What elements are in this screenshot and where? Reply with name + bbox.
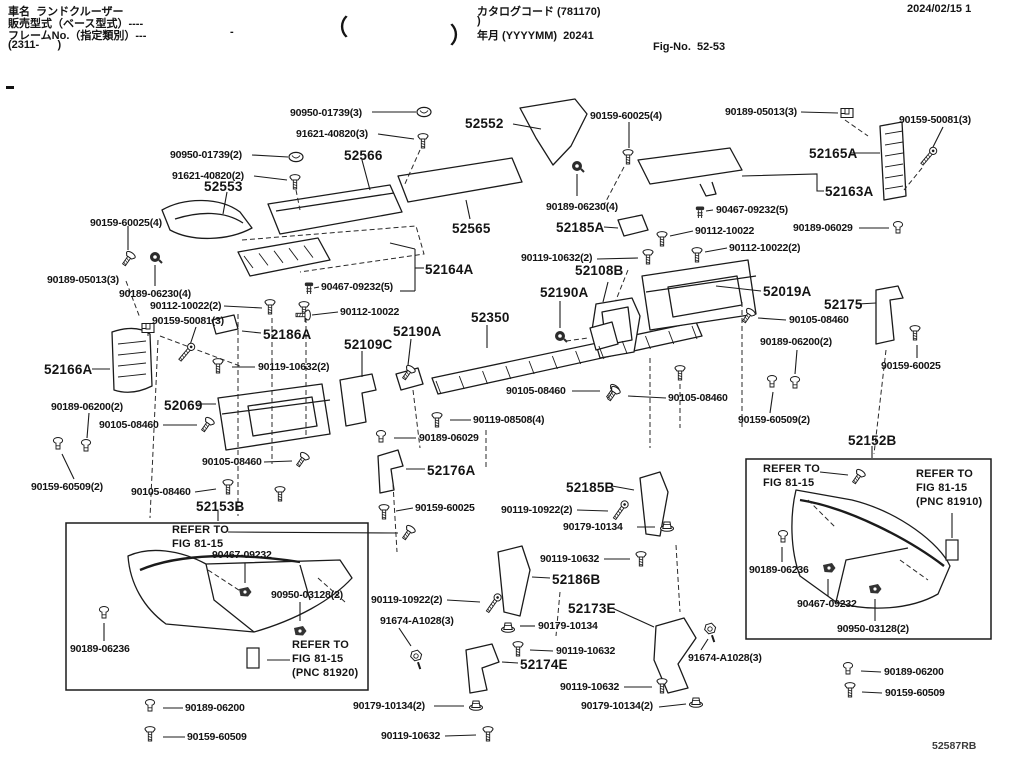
grommet-icon xyxy=(843,663,852,675)
part-number-label: 52553 xyxy=(204,179,243,195)
part-number-label: 91621-40820(3) xyxy=(296,128,368,140)
part-number-label: 52176A xyxy=(427,463,476,479)
oval-clip-icon xyxy=(417,107,431,116)
part-number-label: 90189-06230(4) xyxy=(546,201,618,213)
part-number-label: 90159-60025 xyxy=(881,360,941,372)
push-nut-icon xyxy=(572,161,584,172)
part-number-label: 90105-08460 xyxy=(789,314,849,326)
part-number-label: 90189-06200 xyxy=(884,666,944,678)
part-number-label: 52165A xyxy=(809,146,858,162)
bolt-icon xyxy=(294,451,310,469)
refer-note: REFER TO FIG 81-15 xyxy=(763,463,820,491)
part-number-label: 90189-06200 xyxy=(185,702,245,714)
part-number-label: 90159-50081(3) xyxy=(152,315,224,327)
part-number-label: 91674-A1028(3) xyxy=(380,615,454,627)
grommet-icon xyxy=(53,438,62,450)
refer-note: REFER TO FIG 81-15 (PNC 81910) xyxy=(916,468,982,509)
part-number-label: 52186B xyxy=(552,572,601,588)
exploded-parts-diagram xyxy=(0,0,1009,768)
part-number-label: 52109C xyxy=(344,337,393,353)
part-number-label: 52190A xyxy=(393,324,442,340)
parts-catalog-page: 車名 ランドクルーザー 販売型式（ベース型式）---- フレームNo.（指定類別… xyxy=(0,0,1009,768)
part-number-label: 90189-06029 xyxy=(793,222,853,234)
part-number-label: 90189-05013(3) xyxy=(725,106,797,118)
part-number-label: 90119-10632 xyxy=(560,681,619,693)
bolt-icon xyxy=(675,366,685,380)
part-number-label: 90119-10632 xyxy=(540,553,599,565)
bolt-icon xyxy=(623,150,633,164)
hex-screw-icon xyxy=(408,649,425,669)
part-number-label: 90189-05013(3) xyxy=(47,274,119,286)
pnc-ref-icon xyxy=(247,648,259,668)
part-number-label: 52565 xyxy=(452,221,491,237)
bolt-icon xyxy=(265,300,275,314)
part-number-label: 90112-10022(2) xyxy=(150,300,221,312)
part-number-label: 90112-10022 xyxy=(340,306,399,318)
part-number-label: 90105-08460 xyxy=(131,486,191,498)
part-number-label: 52108B xyxy=(575,263,624,279)
part-number-label: 90159-60509 xyxy=(187,731,247,743)
refer-note: REFER TO FIG 81-15 xyxy=(172,524,229,552)
bolt-icon xyxy=(120,250,136,268)
grommet-icon xyxy=(99,607,108,619)
hex-screw-icon xyxy=(702,622,719,642)
screw-icon xyxy=(612,499,630,520)
part-number-label: 90950-03128(2) xyxy=(837,623,909,635)
part-number-label: 52186A xyxy=(263,327,312,343)
grommet-icon xyxy=(145,700,154,712)
part-number-label: 90189-06029 xyxy=(419,432,479,444)
part-number-label: 52552 xyxy=(465,116,504,132)
part-number-label: 90159-60025(4) xyxy=(590,110,662,122)
part-number-label: 90105-08460 xyxy=(668,392,728,404)
part-number-label: 90119-10632 xyxy=(556,645,615,657)
grommet-icon xyxy=(81,440,90,452)
bolt-icon xyxy=(657,232,667,246)
part-number-label: 90119-10922(2) xyxy=(501,504,572,516)
bolt-icon xyxy=(910,326,920,340)
bolt-icon xyxy=(483,727,493,741)
part-number-label: 52069 xyxy=(164,398,203,414)
part-number-label: 52174E xyxy=(520,657,568,673)
bolt-icon xyxy=(213,359,223,373)
screw-icon xyxy=(919,146,938,167)
part-number-label: 90105-08460 xyxy=(202,456,262,468)
washer-nut-icon xyxy=(470,701,483,710)
part-number-label: 90950-01739(3) xyxy=(290,107,362,119)
part-number-label: 90105-08460 xyxy=(506,385,566,397)
push-nut-icon xyxy=(150,252,162,263)
bolt-icon xyxy=(145,727,155,741)
washer-nut-icon xyxy=(502,623,515,632)
bolt-icon xyxy=(432,413,442,427)
grommet-icon xyxy=(893,222,902,234)
part-number-label: 52164A xyxy=(425,262,474,278)
part-number-label: 90159-60025 xyxy=(415,502,475,514)
bolt-icon xyxy=(199,416,215,434)
bolt-icon xyxy=(418,134,428,148)
part-number-label: 90179-10134(2) xyxy=(581,700,653,712)
part-number-label: 52163A xyxy=(825,184,874,200)
part-number-label: 52350 xyxy=(471,310,510,326)
part-number-label: 52566 xyxy=(344,148,383,164)
part-number-label: 90179-10134(2) xyxy=(353,700,425,712)
pin-icon xyxy=(305,283,313,295)
bolt-icon xyxy=(275,487,285,501)
part-number-label: 90950-01739(2) xyxy=(170,149,242,161)
part-number-label: 90467-09232(5) xyxy=(321,281,393,293)
part-number-label: 90159-60509(2) xyxy=(31,481,103,493)
part-number-label: 52185A xyxy=(556,220,605,236)
part-number-label: 52019A xyxy=(763,284,812,300)
part-number-label: 90119-10632 xyxy=(381,730,440,742)
part-number-label: 90105-08460 xyxy=(99,419,159,431)
part-number-label: 90950-03128(2) xyxy=(271,589,343,601)
part-number-label: 90467-09232 xyxy=(212,549,272,561)
push-nut-icon xyxy=(555,331,567,342)
drawing-code: 52587RB xyxy=(932,740,976,752)
part-number-label: 90179-10134 xyxy=(538,620,598,632)
part-number-label: 90159-60509(2) xyxy=(738,414,810,426)
screw-icon xyxy=(177,342,196,363)
bolt-icon xyxy=(290,175,300,189)
part-number-label: 90179-10134 xyxy=(563,521,623,533)
square-clip-icon xyxy=(841,109,853,118)
part-number-label: 90159-50081(3) xyxy=(899,114,971,126)
part-number-label: 52190A xyxy=(540,285,589,301)
part-number-label: 52185B xyxy=(566,480,615,496)
bolt-icon xyxy=(223,480,233,494)
bolt-icon xyxy=(379,505,389,519)
part-number-label: 52152B xyxy=(848,433,897,449)
part-number-label: 90112-10022 xyxy=(695,225,754,237)
grommet-icon xyxy=(376,431,385,443)
refer-note: REFER TO FIG 81-15 (PNC 81920) xyxy=(292,639,358,680)
bolt-icon xyxy=(636,552,646,566)
bolt-icon xyxy=(643,250,653,264)
bolt-icon xyxy=(513,642,523,656)
oval-clip-icon xyxy=(289,152,303,161)
part-number-label: 52166A xyxy=(44,362,93,378)
pin-icon xyxy=(696,207,704,219)
part-number-label: 90159-60509 xyxy=(885,687,945,699)
grommet-icon xyxy=(767,376,776,388)
bolt-icon xyxy=(845,683,855,697)
part-number-label: 90119-08508(4) xyxy=(473,414,544,426)
part-number-label: 90159-60025(4) xyxy=(90,217,162,229)
part-number-label: 90189-06230(4) xyxy=(119,288,191,300)
bolt-icon xyxy=(400,524,416,542)
part-number-label: 90467-09232 xyxy=(797,598,857,610)
washer-nut-icon xyxy=(690,698,703,707)
screw-icon xyxy=(485,592,503,613)
pnc-ref-icon xyxy=(946,540,958,560)
part-number-label: 90189-06236 xyxy=(70,643,130,655)
grommet-icon xyxy=(790,377,799,389)
part-number-label: 52153B xyxy=(196,499,245,515)
part-number-label: 90467-09232(5) xyxy=(716,204,788,216)
part-number-label: 52175 xyxy=(824,297,863,313)
rivet-clip-icon xyxy=(294,626,307,636)
bolt-icon xyxy=(850,468,866,486)
part-number-label: 52173E xyxy=(568,601,616,617)
part-number-label: 90119-10922(2) xyxy=(371,594,442,606)
part-number-label: 90112-10022(2) xyxy=(729,242,800,254)
part-number-label: 90189-06200(2) xyxy=(760,336,832,348)
grommet-icon xyxy=(778,531,787,543)
part-number-label: 91674-A1028(3) xyxy=(688,652,762,664)
bolt-icon xyxy=(692,248,702,262)
part-number-label: 90189-06236 xyxy=(749,564,809,576)
part-number-label: 90189-06200(2) xyxy=(51,401,123,413)
part-number-label: 90119-10632(2) xyxy=(258,361,329,373)
